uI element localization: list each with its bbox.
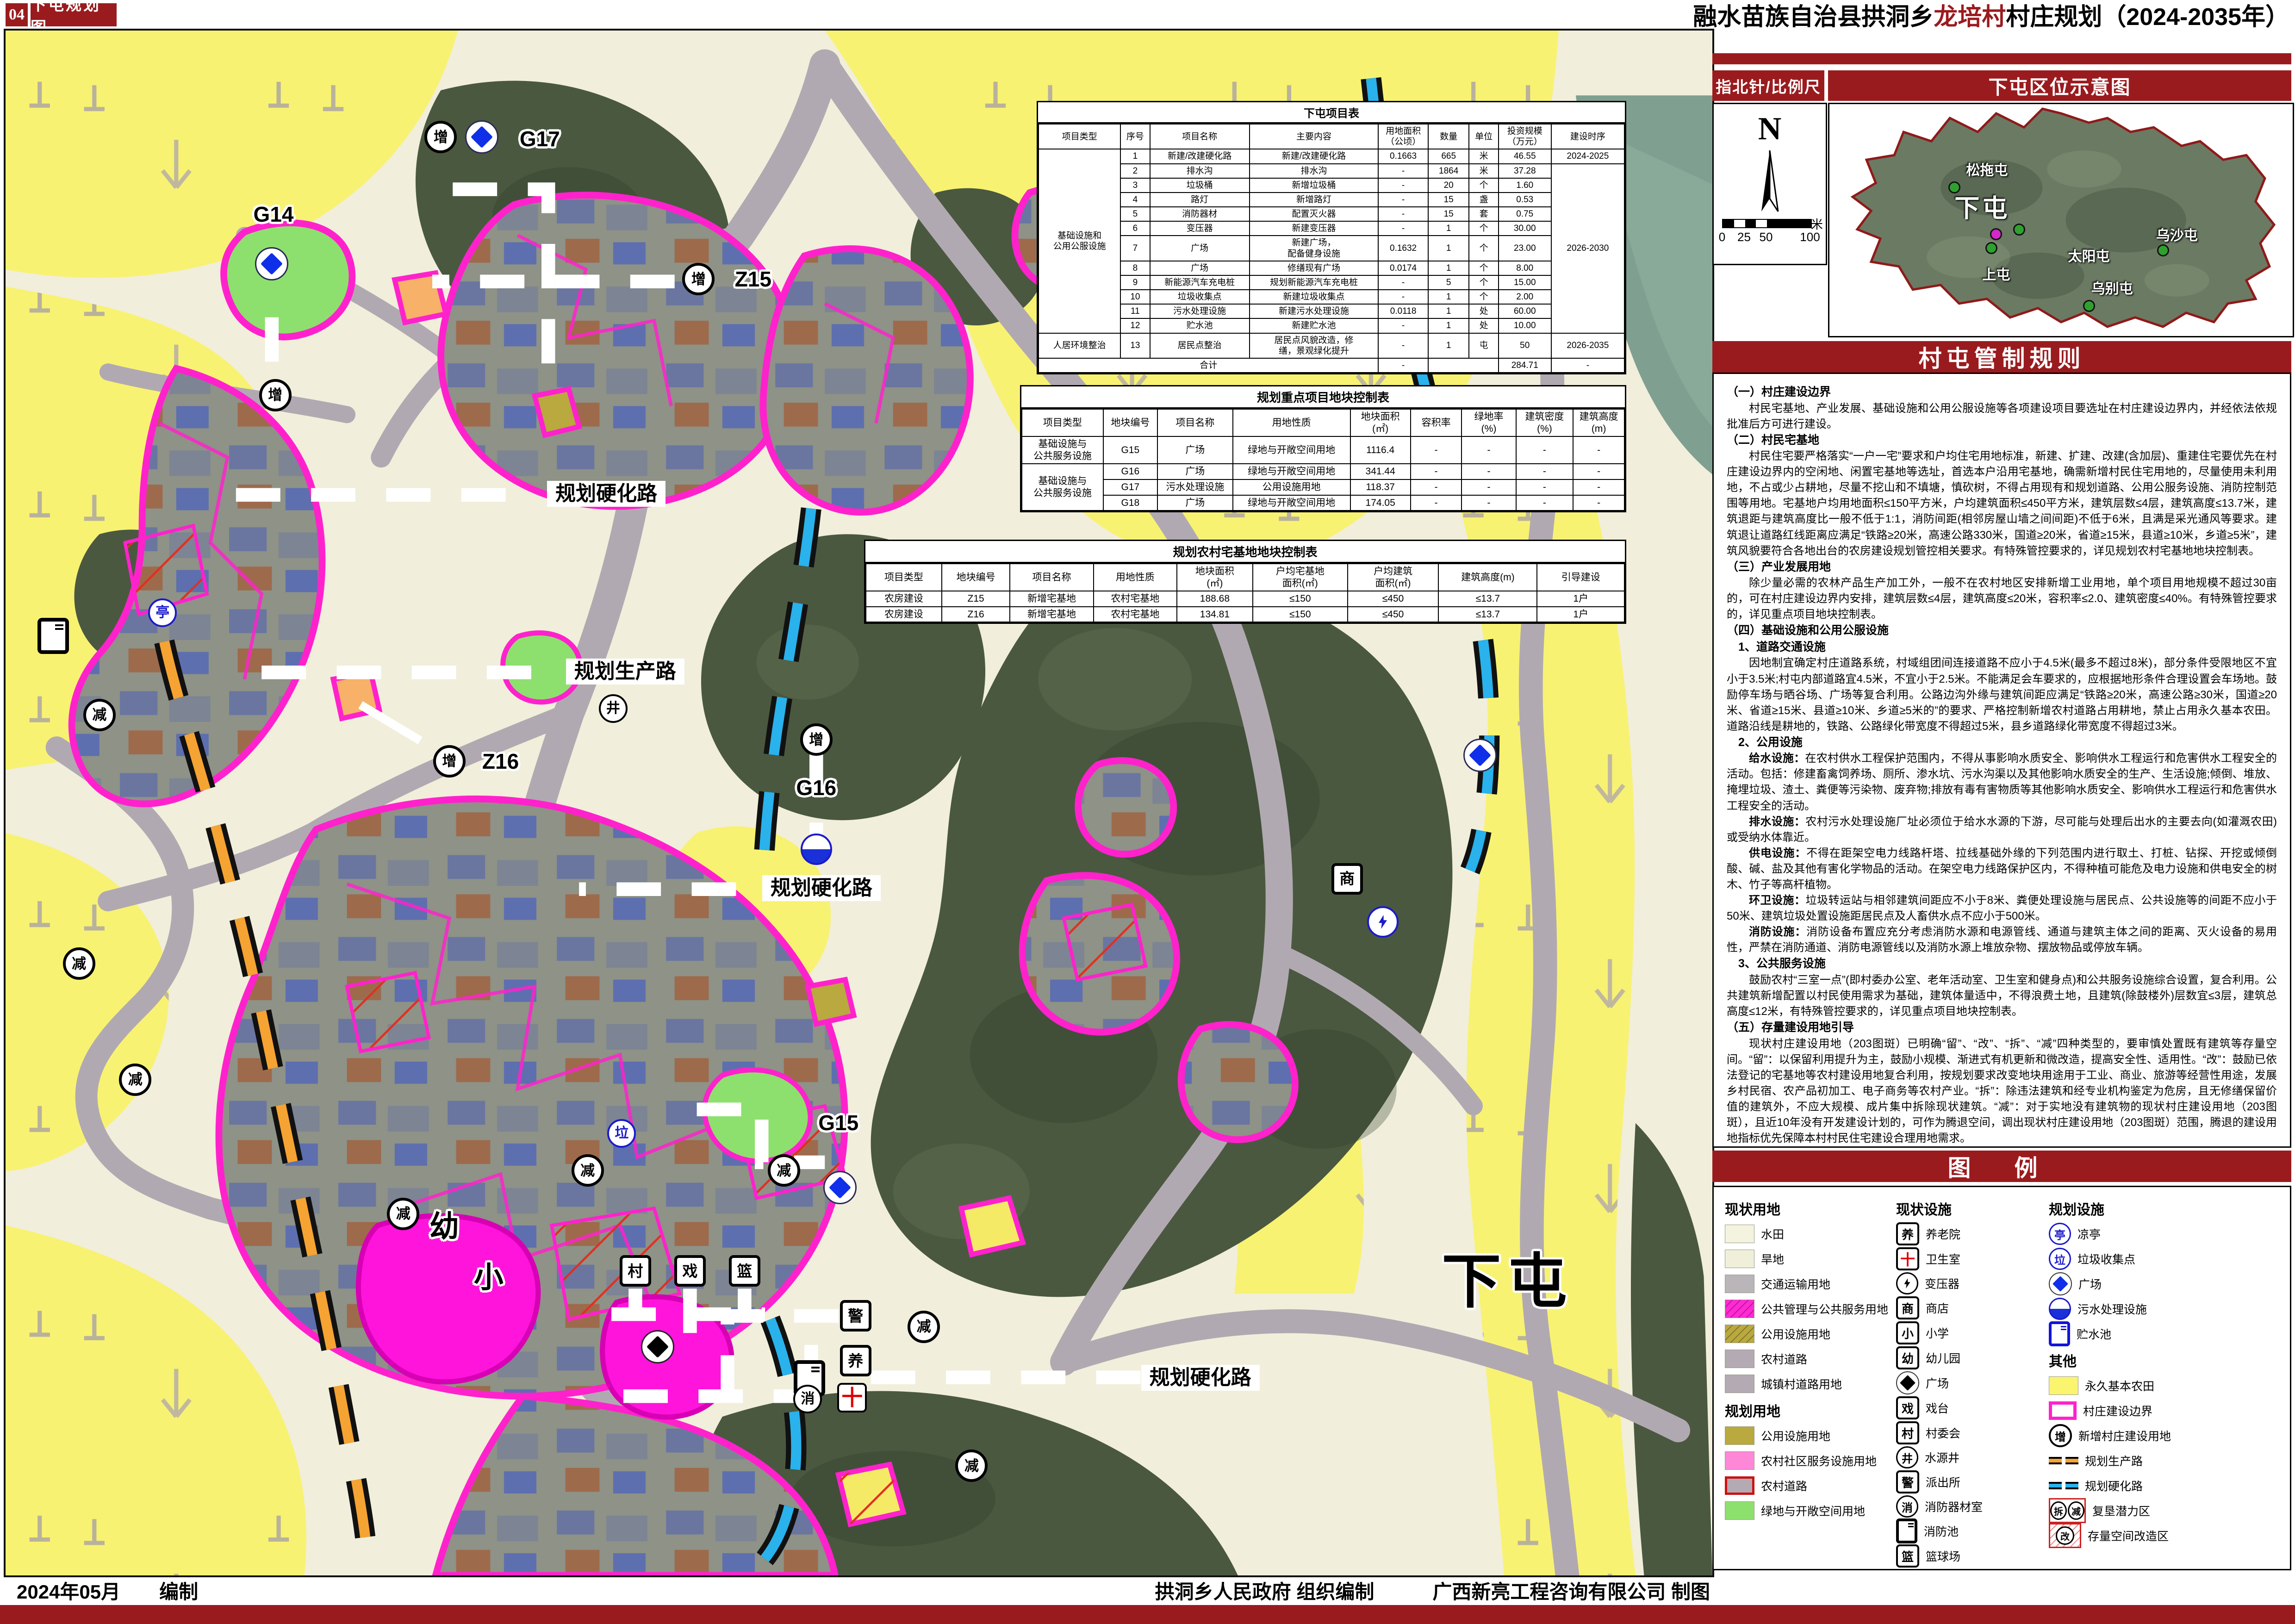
table-cell: 5	[1120, 207, 1150, 221]
column-header: 数量	[1428, 124, 1469, 149]
bottom-red-bar	[0, 1605, 2295, 1624]
legend-swatch	[1725, 1325, 1754, 1343]
map-marker-jian-减: 减	[63, 947, 95, 980]
map-marker-transformer	[1367, 906, 1399, 938]
legend-item: 改存量空间改造区	[2049, 1524, 2285, 1547]
table-cell: 2026-2035	[1551, 333, 1624, 358]
table-cell: 个	[1469, 290, 1498, 304]
rules-paragraph: 2、公用设施	[1727, 734, 2277, 751]
table-cell: 基础设施与公共服务设施	[1022, 436, 1103, 464]
village-label-下屯: 下屯	[1954, 188, 2010, 224]
legend-item-label: 绿地与开敞空间用地	[1761, 1502, 1865, 1519]
legend-item: 消防池	[1896, 1519, 2049, 1543]
rules-paragraph: 3、公共服务设施	[1727, 956, 2277, 972]
north-label: N	[1714, 111, 1826, 148]
map-marker-cblue-亭: 亭	[148, 598, 177, 627]
map-marker-sewage	[801, 834, 832, 865]
rules-paragraph: 供电设施：不得在距架空电力线路杆塔、拉线基础外缘的下列范围内进行取土、打桩、钻探…	[1727, 846, 2277, 893]
table-cell: -	[1516, 479, 1574, 495]
legend-item: 公用设施用地	[1725, 1424, 1896, 1447]
map-marker-dblue	[823, 1171, 857, 1204]
compass-panel-title: 指北针/比例尺	[1712, 70, 1824, 101]
legend-circle-icon-亭: 亭	[2049, 1223, 2071, 1245]
table-cell: 341.44	[1350, 464, 1411, 479]
table-row: 农房建设Z15新增宅基地农村宅基地188.68≤150≤450≤13.71户	[866, 591, 1624, 607]
map-marker-circle-消: 消	[793, 1385, 822, 1413]
table-cell: -	[1462, 495, 1516, 511]
table-cell: 个	[1469, 221, 1498, 236]
rules-paragraph: 消防设施：消防设备布置应充分考虑消防水源和电源管线、通道与建筑主体之间的距离、灭…	[1727, 924, 2277, 956]
table-cell: 新增垃圾桶	[1250, 178, 1379, 193]
legend-panel: 现状用地水田旱地交通运输用地公共管理与公共服务用地公用设施用地农村道路城镇村道路…	[1712, 1186, 2291, 1570]
map-marker-bigchar-小: 小	[474, 1263, 504, 1292]
legend-item: 养养老院	[1896, 1222, 2049, 1245]
table-cell: 1户	[1537, 607, 1624, 622]
map-marker-rlabel-规划硬化路: 规划硬化路	[762, 875, 881, 901]
table-cell: G15	[1103, 436, 1157, 464]
column-header: 户均建筑面积(㎡)	[1348, 564, 1439, 591]
table-cell: 8	[1120, 261, 1150, 275]
table-cell: G18	[1103, 495, 1157, 511]
legend-group-title: 其他	[2049, 1350, 2285, 1370]
table-cell: 新增宅基地	[1010, 607, 1093, 622]
rules-paragraph: （一）村庄建设边界	[1727, 384, 2277, 401]
table-cell: 路灯	[1150, 193, 1250, 207]
legend-item-label: 村委会	[1926, 1425, 1960, 1441]
table-cell: G16	[1103, 464, 1157, 479]
column-header: 引导建设	[1537, 564, 1624, 591]
table-cell: ≤450	[1348, 607, 1439, 622]
village-dot-下屯	[1990, 228, 2002, 240]
legend-title: 图 例	[1712, 1151, 2291, 1182]
table-cell: 农房建设	[866, 591, 942, 607]
table-cell: 30.00	[1499, 221, 1551, 236]
table-row: 6变压器新建变压器-1个30.00	[1039, 221, 1624, 236]
legend-item: 污水处理设施	[2049, 1297, 2285, 1320]
village-dot-乌沙屯	[2157, 244, 2169, 256]
rules-paragraph: 现状村庄建设用地（203图斑）已明确“留”、“改”、“拆”、“减”四种类型的，要…	[1727, 1036, 2277, 1147]
legend-item-label: 垃圾收集点	[2077, 1251, 2135, 1267]
scale-labels: 0 25 50 100	[1722, 230, 1810, 244]
table-cell: 60.00	[1499, 304, 1551, 318]
column-header: 序号	[1120, 124, 1150, 149]
legend-item: 篮篮球场	[1896, 1544, 2049, 1568]
table-cell: 农村宅基地	[1094, 591, 1177, 607]
legend-swatch	[1725, 1225, 1754, 1243]
village-dot-上屯	[1985, 242, 1997, 254]
table-cell: 665	[1428, 149, 1469, 163]
rules-text: （一）村庄建设边界村民宅基地、产业发展、基础设施和公用公服设施等各项建设项目要选…	[1712, 373, 2291, 1148]
table-cell: 广场	[1157, 464, 1233, 479]
table-cell: 1864	[1428, 164, 1469, 178]
column-header: 项目类型	[1022, 409, 1103, 436]
legend-item-label: 公共管理与公共服务用地	[1761, 1300, 1888, 1317]
legend-item-label: 城镇村道路用地	[1761, 1375, 1842, 1392]
table-cell: 米	[1469, 149, 1498, 163]
table-cell: 套	[1469, 207, 1498, 221]
table-row: 8广场修缮现有广场0.01741个8.00	[1039, 261, 1624, 275]
table-cell: 人居环境整治	[1039, 333, 1120, 358]
legend-box-icon-商: 商	[1896, 1296, 1919, 1319]
table-cell: 6	[1120, 221, 1150, 236]
legend-item: 戏戏台	[1896, 1396, 2049, 1419]
rules-paragraph: 1、道路交通设施	[1727, 639, 2277, 656]
table-cell: 新建/改建硬化路	[1150, 149, 1250, 163]
legend-item-label: 水源井	[1925, 1449, 1959, 1466]
table-cell: -	[1378, 164, 1428, 178]
table-cell: 0.1663	[1378, 149, 1428, 163]
map-marker-big-下屯: 下屯	[1442, 1252, 1573, 1312]
table-cell: 垃圾收集点	[1150, 290, 1250, 304]
rules-paragraph: 因地制宜确定村庄道路系统，村域组团间连接道路不应小于4.5米(最多不超过8米)，…	[1727, 655, 2277, 734]
legend-item-label: 规划硬化路	[2085, 1477, 2143, 1494]
table-cell: 污水处理设施	[1150, 304, 1250, 318]
table-cell: -	[1516, 495, 1574, 511]
legend-item-label: 旱地	[1761, 1251, 1784, 1267]
table-cell: 农房建设	[866, 607, 942, 622]
legend-item-label: 广场	[2078, 1276, 2102, 1292]
rules-paragraph: （二）村民宅基地	[1727, 432, 2277, 449]
table-cell: -	[1411, 495, 1462, 511]
legend-swatch	[1725, 1250, 1754, 1268]
table-cell: 46.55	[1499, 149, 1551, 163]
location-map-title: 下屯区位示意图	[1828, 70, 2291, 101]
table-cell: 1户	[1537, 591, 1624, 607]
rules-paragraph: 村民宅基地、产业发展、基础设施和公用公服设施等各项建设项目要选址在村庄建设边界内…	[1727, 401, 2277, 432]
village-label-乌别屯: 乌别屯	[2091, 277, 2133, 298]
footer-credits: 拱洞乡人民政府 组织编制 广西新亮工程咨询有限公司 制图	[1069, 1576, 1710, 1605]
planning-map[interactable]: 增G17增Z15G14增规划硬化路亭规划生产路井增Z16减减减增G16规划硬化路…	[4, 29, 1714, 1577]
scale-tick-50: 50	[1760, 230, 1773, 244]
rules-paragraph: 村民住宅要严格落实“一户一宅”要求和户均住宅用地标准，新建、扩建、改建(含加层)…	[1727, 448, 2277, 559]
column-header: 容积率	[1411, 409, 1462, 436]
map-marker-code-G17: G17	[520, 128, 560, 149]
sheet-number-badge: 04	[6, 3, 28, 26]
map-marker-tank	[37, 618, 69, 654]
column-header: 建筑高度(m)	[1438, 564, 1537, 591]
table-cell: 134.81	[1177, 607, 1253, 622]
table-cell: -	[1573, 464, 1624, 479]
table-cell: 屯	[1469, 333, 1498, 358]
table-cell: 0.53	[1499, 193, 1551, 207]
table-cell: 11	[1120, 304, 1150, 318]
legend-item-label: 篮球场	[1926, 1548, 1960, 1564]
map-marker-square-戏: 戏	[674, 1255, 706, 1287]
map-marker-square-商: 商	[1331, 863, 1363, 895]
legend-item: 公用设施用地	[1725, 1322, 1896, 1345]
table-cell: -	[1378, 275, 1428, 290]
legend-item: 交通运输用地	[1725, 1272, 1896, 1295]
map-marker-zeng-增: 增	[800, 723, 833, 756]
table-cell: 个	[1469, 236, 1498, 261]
table-cell: 1	[1428, 318, 1469, 333]
legend-box-icon-小: 小	[1896, 1321, 1919, 1344]
footer-date: 2024年05月 编制	[17, 1576, 198, 1605]
hardened-road-icon	[2049, 1482, 2078, 1489]
table-cell: -	[1462, 479, 1516, 495]
water-tank-icon	[2049, 1321, 2070, 1346]
legend-item: 消消防器材室	[1896, 1495, 2049, 1518]
column-header: 项目类型	[1039, 124, 1120, 149]
legend-item: 城镇村道路用地	[1725, 1372, 1896, 1395]
table-cell: -	[1462, 464, 1516, 479]
legend-item-label: 贮水池	[2077, 1325, 2111, 1342]
village-label-上屯: 上屯	[1982, 263, 2010, 284]
map-marker-jian-减: 减	[908, 1311, 940, 1343]
map-marker-dblue	[255, 247, 288, 280]
village-dot	[2013, 224, 2025, 236]
table-cell: -	[1378, 178, 1428, 193]
table-cell: 2	[1120, 164, 1150, 178]
table-cell: 绿地与开敞空间用地	[1233, 436, 1350, 464]
legend-item: 垃垃圾收集点	[2049, 1247, 2285, 1270]
column-header: 用地面积（公顷）	[1378, 124, 1428, 149]
legend-box-icon-幼: 幼	[1896, 1346, 1919, 1369]
table-cell: 公用设施用地	[1233, 479, 1350, 495]
legend-item: 广场	[2049, 1272, 2285, 1295]
table-cell: 新建污水处理设施	[1250, 304, 1379, 318]
column-header: 地块编号	[942, 564, 1010, 591]
map-marker-code-G14: G14	[254, 204, 294, 225]
column-header: 项目名称	[1157, 409, 1233, 436]
legend-box-icon-篮: 篮	[1896, 1544, 1919, 1568]
table-cell: 新增宅基地	[1010, 591, 1093, 607]
table-cell: 居民点风貌改造，修缮，景观绿化提升	[1250, 333, 1379, 358]
table-row: 10垃圾收集点新建垃圾收集点-1个2.00	[1039, 290, 1624, 304]
table-cell: 8.00	[1499, 261, 1551, 275]
map-marker-code-Z16: Z16	[482, 751, 519, 772]
legend-item-label: 规划生产路	[2085, 1452, 2143, 1469]
village-label-乌沙屯: 乌沙屯	[2156, 224, 2198, 244]
table-cell: -	[1411, 436, 1462, 464]
homestead-table: 规划农村宅基地地块控制表项目类型地块编号项目名称用地性质地块面积(㎡)户均宅基地…	[864, 540, 1626, 624]
table-title: 下屯项目表	[1038, 102, 1625, 124]
table-cell: 个	[1469, 261, 1498, 275]
legend-item: 亭凉亭	[2049, 1222, 2285, 1245]
legend-item: 农村社区服务设施用地	[1725, 1449, 1896, 1472]
clinic-cross-icon: 十	[1896, 1247, 1919, 1270]
north-arrow-icon	[1747, 147, 1793, 216]
rules-paragraph: （四）基础设施和公用公服设施	[1727, 622, 2277, 639]
legend-item-label: 公用设施用地	[1761, 1427, 1830, 1444]
legend-item-label: 商店	[1926, 1300, 1949, 1316]
legend-item: 贮水池	[2049, 1322, 2285, 1345]
location-map-blob	[1829, 104, 2293, 336]
table-cell: 新建广场，配备健身设施	[1250, 236, 1379, 261]
column-header: 用地性质	[1094, 564, 1177, 591]
table-cell: 基础设施和公用公服设施	[1039, 149, 1120, 333]
legend-circle-icon-消: 消	[1896, 1495, 1918, 1518]
scale-tick-100: 100	[1800, 230, 1820, 244]
table-cell: 0.1632	[1378, 236, 1428, 261]
column-header: 户均宅基地面积(㎡)	[1253, 564, 1348, 591]
fire-pool-icon	[1896, 1518, 1917, 1543]
rules-panel-title: 村屯管制规则	[1712, 341, 2291, 373]
table-cell: -	[1378, 193, 1428, 207]
table-cell: 排水沟	[1150, 164, 1250, 178]
legend-item: 警派出所	[1896, 1470, 2049, 1493]
sewage-plant-icon	[2049, 1298, 2071, 1320]
legend-item: 村庄建设边界	[2049, 1399, 2285, 1422]
table-row: 12贮水池新建贮水池-1处10.00	[1039, 318, 1624, 333]
map-marker-jian-减: 减	[572, 1154, 604, 1187]
table-cell: 12	[1120, 318, 1150, 333]
table-row: G18广场绿地与开敞空间用地174.05----	[1022, 495, 1624, 511]
table-cell: ≤450	[1348, 591, 1439, 607]
column-header: 绿地率(%)	[1462, 409, 1516, 436]
table-row: 4路灯新增路灯-15盏0.53	[1039, 193, 1624, 207]
legend-item: 商商店	[1896, 1296, 2049, 1319]
table-cell: Z16	[942, 607, 1010, 622]
column-header: 用地性质	[1233, 409, 1350, 436]
table-title: 规划重点项目地块控制表	[1021, 386, 1625, 409]
table-cell: 处	[1469, 318, 1498, 333]
table-cell: -	[1378, 290, 1428, 304]
new-construction-icon: 增	[2049, 1424, 2072, 1447]
table-cell: 广场	[1157, 495, 1233, 511]
legend-item-label: 公用设施用地	[1761, 1325, 1830, 1342]
table-row: 11污水处理设施新建污水处理设施0.01181处60.00	[1039, 304, 1624, 318]
table-cell: 排水沟	[1250, 164, 1379, 178]
plan-title-suffix: 村庄规划（2024-2035年）	[2006, 0, 2289, 32]
table-cell: 50	[1499, 333, 1551, 358]
table-cell: 4	[1120, 193, 1150, 207]
table-row: 基础设施与公共服务设施G16广场绿地与开敞空间用地341.44----	[1022, 464, 1624, 479]
legend-item: 水田	[1725, 1222, 1896, 1245]
legend-swatch	[1725, 1451, 1754, 1470]
table-cell: 污水处理设施	[1157, 479, 1233, 495]
sidebar-divider-bar	[1712, 53, 2291, 64]
legend-item: 十卫生室	[1896, 1247, 2049, 1270]
table-cell: -	[1378, 333, 1428, 358]
compass-panel: N 米 0 25 50 100	[1712, 103, 1827, 265]
legend-column: 现状设施养养老院十卫生室变压器商商店小小学幼幼儿园广场戏戏台村村委会井水源井警派…	[1896, 1195, 2049, 1564]
map-marker-jian-减: 减	[83, 699, 116, 731]
legend-swatch	[1725, 1300, 1754, 1318]
plaza-black-diamond-icon	[1896, 1371, 1919, 1394]
table-cell: 1	[1428, 304, 1469, 318]
legend-item-label: 农村社区服务设施用地	[1761, 1452, 1877, 1469]
legend-group-title: 规划用地	[1725, 1400, 1896, 1420]
table-cell: 10.00	[1499, 318, 1551, 333]
map-marker-code-G15: G15	[818, 1112, 858, 1133]
map-marker-code-Z15: Z15	[735, 268, 771, 290]
renovation-zone-icon: 改	[2049, 1523, 2081, 1548]
table-cell: 居民点整治	[1150, 333, 1250, 358]
table-cell: 新建垃圾收集点	[1250, 290, 1379, 304]
legend-item-label: 农村道路	[1761, 1350, 1807, 1367]
table-cell: ≤13.7	[1438, 607, 1537, 622]
table-cell: 1	[1428, 290, 1469, 304]
page: 04 下屯规划图 融水苗族自治县拱洞乡龙培村 村庄规划（2024-2035年）	[0, 0, 2295, 1624]
village-label-太阳屯: 太阳屯	[2068, 245, 2110, 265]
map-marker-dblack	[641, 1330, 674, 1363]
legend-item: 拆减复垦潜力区	[2049, 1499, 2285, 1522]
table-cell: 118.37	[1350, 479, 1411, 495]
map-marker-rlabel-规划硬化路: 规划硬化路	[547, 481, 665, 507]
map-marker-dblue	[1463, 739, 1497, 772]
table-cell: 规划新能源汽车充电桩	[1250, 275, 1379, 290]
table-cell: -	[1378, 358, 1428, 373]
plan-title-village: 龙培村	[1934, 0, 2006, 32]
table-cell: 15.00	[1499, 275, 1551, 290]
map-marker-circle-井: 井	[599, 694, 628, 723]
table-cell: 1116.4	[1350, 436, 1411, 464]
legend-circle-icon-井: 井	[1896, 1446, 1918, 1468]
table-cell: 米	[1469, 164, 1498, 178]
map-marker-jian-减: 减	[387, 1198, 419, 1230]
table-cell: 13	[1120, 333, 1150, 358]
table-cell: 188.68	[1177, 591, 1253, 607]
rules-paragraph: 环卫设施：垃圾转运站与相邻建筑间距应不小于8米、粪便处理设施与居民点、公共设施等…	[1727, 893, 2277, 924]
legend-item-label: 幼儿园	[1926, 1350, 1960, 1366]
legend-item-label: 广场	[1926, 1375, 1949, 1391]
legend-item-label: 小学	[1926, 1325, 1949, 1341]
table-cell: 新建贮水池	[1250, 318, 1379, 333]
legend-item-label: 消防池	[1924, 1523, 1959, 1539]
table-row: 人居环境整治13居民点整治居民点风貌改造，修缮，景观绿化提升-1屯502026-…	[1039, 333, 1624, 358]
legend-item: 规划生产路	[2049, 1449, 2285, 1472]
legend-item-label: 戏台	[1926, 1400, 1949, 1416]
legend-item: 旱地	[1725, 1247, 1896, 1270]
map-marker-square-养: 养	[840, 1345, 871, 1376]
table-cell: 1	[1428, 333, 1469, 358]
table-cell: 9	[1120, 275, 1150, 290]
legend-item: 井水源井	[1896, 1446, 2049, 1468]
table-cell: 绿地与开敞空间用地	[1233, 495, 1350, 511]
legend-item-label: 农村道路	[1761, 1477, 1807, 1494]
table-cell: -	[1573, 479, 1624, 495]
table-cell: 广场	[1150, 261, 1250, 275]
map-marker-jian-减: 减	[955, 1450, 988, 1482]
legend-item: 变压器	[1896, 1272, 2049, 1294]
table-cell: -	[1516, 436, 1574, 464]
legend-swatch	[1725, 1375, 1754, 1393]
table-cell: -	[1551, 358, 1624, 373]
map-marker-code-G16: G16	[796, 777, 836, 798]
map-marker-zeng-增: 增	[433, 745, 466, 778]
legend-item-label: 养老院	[1926, 1226, 1960, 1242]
location-map-panel: 松拖屯下屯上屯太阳屯乌沙屯乌别屯	[1828, 103, 2294, 337]
legend-item-label: 凉亭	[2077, 1226, 2101, 1242]
column-header: 地块编号	[1103, 409, 1157, 436]
map-marker-cross-十: 十	[837, 1383, 867, 1412]
reclamation-zone-icon: 拆减	[2049, 1498, 2086, 1523]
table-cell: Z15	[942, 591, 1010, 607]
legend-box-icon-警: 警	[1896, 1470, 1919, 1493]
table-cell: 配置灭火器	[1250, 207, 1379, 221]
table-cell: 0.0118	[1378, 304, 1428, 318]
table-cell: 7	[1120, 236, 1150, 261]
map-marker-cblue-垃: 垃	[607, 1119, 636, 1148]
legend-item: 增新增村庄建设用地	[2049, 1424, 2285, 1447]
legend-item-label: 消防器材室	[1925, 1498, 1983, 1515]
map-marker-rlabel-规划硬化路: 规划硬化路	[1141, 1365, 1260, 1391]
table-cell: 1	[1428, 221, 1469, 236]
table-cell: 新建/改建硬化路	[1250, 149, 1379, 163]
map-marker-jian-减: 减	[768, 1154, 800, 1187]
map-marker-zeng-增: 增	[682, 263, 715, 295]
table-cell: 广场	[1157, 436, 1233, 464]
table-row: 2排水沟排水沟-1864米37.282026-2030	[1039, 164, 1624, 178]
table-cell: -	[1378, 318, 1428, 333]
legend-item: 幼幼儿园	[1896, 1346, 2049, 1369]
column-header: 项目名称	[1010, 564, 1093, 591]
column-header: 主要内容	[1250, 124, 1379, 149]
table-cell: 合计	[1039, 358, 1378, 373]
legend-item-label: 复垦潜力区	[2092, 1502, 2150, 1519]
table-cell: 2024-2025	[1551, 149, 1624, 163]
